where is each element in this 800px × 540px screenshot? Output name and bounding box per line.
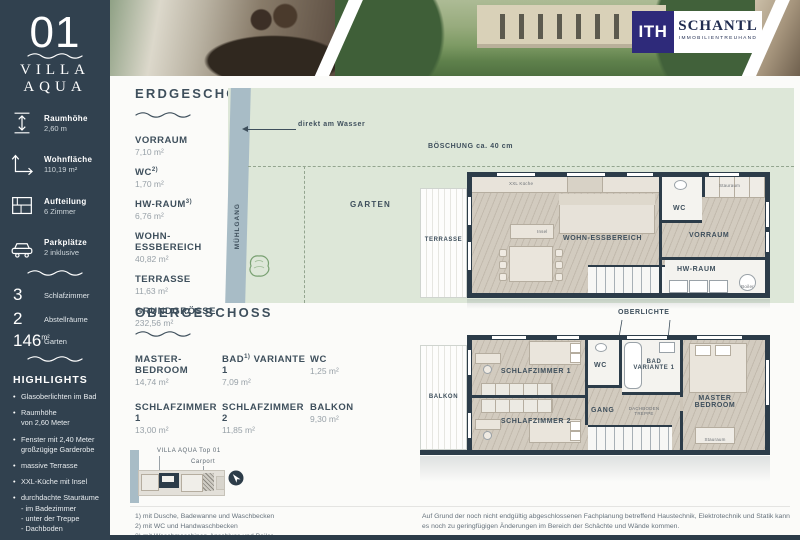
kueche-label: XXL Küche bbox=[509, 181, 533, 186]
kitchen-counter bbox=[472, 177, 659, 193]
unit-interior bbox=[162, 476, 174, 482]
stairs bbox=[588, 265, 668, 293]
appliance bbox=[709, 280, 728, 293]
plan-reflection bbox=[467, 299, 770, 309]
annotation-line bbox=[244, 129, 296, 130]
window bbox=[492, 336, 526, 339]
hw-raum-label: HW-RAUM bbox=[677, 266, 716, 273]
balcony-door bbox=[468, 413, 471, 438]
spec-value: 110,19 m² bbox=[44, 165, 92, 174]
project-title-line1: VILLA bbox=[0, 62, 110, 79]
highlighted-unit-top01 bbox=[159, 473, 179, 488]
oberlichte-label: OBERLICHTE bbox=[618, 309, 670, 316]
room-area: 40,82 m² bbox=[135, 254, 227, 264]
balcony-door bbox=[468, 350, 471, 375]
wave-divider bbox=[135, 329, 191, 337]
terrace-door bbox=[468, 242, 471, 270]
sidebar: 01 VILLA AQUA Raumhöhe 2,60 m Wohnfläche… bbox=[0, 0, 110, 540]
disclaimer-text: Auf Grund der noch nicht endgültig abges… bbox=[422, 512, 790, 532]
wave-divider bbox=[27, 268, 83, 276]
count-value: 146m² bbox=[13, 331, 44, 351]
insel-label: Insel bbox=[537, 229, 548, 234]
miniplan-title: VILLA AQUA Top 01 bbox=[157, 448, 221, 454]
room-name: WC2) bbox=[135, 167, 227, 178]
count-value: 3 bbox=[13, 285, 44, 305]
terrasse-area: TERRASSE bbox=[420, 188, 467, 298]
room-name: HW-RAUM3) bbox=[135, 199, 227, 210]
dachboden-treppe-label: DACHBODEN TREPPE bbox=[622, 406, 666, 416]
room-area: 9,30 m² bbox=[310, 414, 390, 424]
room-area: 11,63 m² bbox=[135, 286, 227, 296]
obergeschoss-heading: OBERGESCHOSS bbox=[135, 305, 395, 320]
car-icon bbox=[8, 233, 36, 261]
direkt-am-wasser-label: direkt am Wasser bbox=[298, 121, 365, 128]
window bbox=[627, 173, 653, 176]
brochure-page: 01 VILLA AQUA Raumhöhe 2,60 m Wohnfläche… bbox=[0, 0, 800, 540]
spec-living-area: Wohnfläche 110,19 m² bbox=[8, 150, 108, 178]
window bbox=[709, 173, 739, 176]
room-name: MASTER-BEDROOM bbox=[135, 354, 222, 376]
wohn-essbereich-label: WOHN-ESSBEREICH bbox=[563, 235, 642, 242]
room-entry: SCHLAFZIMMER 2 11,85 m² bbox=[222, 402, 310, 435]
chair bbox=[555, 261, 563, 269]
bottom-bar bbox=[110, 535, 800, 540]
boiler-label: Boiler bbox=[741, 284, 754, 289]
wc-label: WC bbox=[673, 205, 686, 212]
window bbox=[497, 173, 535, 176]
spec-value: 2 inklusive bbox=[44, 248, 87, 257]
count-label: Schlafzimmer bbox=[44, 291, 89, 300]
spec-parking: Parkplätze 2 inklusive bbox=[8, 233, 108, 261]
plan-reflection bbox=[420, 456, 770, 482]
miniplan-carport-label: Carport bbox=[191, 459, 215, 465]
chair bbox=[499, 261, 507, 269]
kitchen-appliance bbox=[567, 177, 603, 192]
count-storage: 2 Abstellräume bbox=[13, 309, 105, 329]
ith-logo-mark: ITH bbox=[632, 11, 674, 53]
room-name: BAD1) VARIANTE 1 bbox=[222, 354, 310, 376]
wall bbox=[702, 177, 705, 197]
project-title-line2: AQUA bbox=[0, 79, 110, 96]
schantl-logo: SCHANTL IMMOBILIENTREUHAND bbox=[674, 11, 762, 53]
unit bbox=[216, 476, 225, 490]
highlight-item: Fenster mit 2,40 Meter großzügige Garder… bbox=[13, 435, 105, 455]
wall bbox=[588, 385, 619, 388]
toilet bbox=[595, 343, 607, 352]
room-area: 13,00 m² bbox=[135, 425, 222, 435]
arrow-head bbox=[239, 126, 248, 132]
layout-icon bbox=[8, 192, 36, 220]
room-name: VORRAUM bbox=[135, 135, 227, 146]
pillow bbox=[570, 353, 581, 363]
chair bbox=[555, 249, 563, 257]
room-entry: BAD1) VARIANTE 1 7,09 m² bbox=[222, 354, 310, 387]
footer-divider bbox=[130, 506, 790, 507]
gang-label: GANG bbox=[591, 407, 614, 414]
terrasse-label: TERRASSE bbox=[421, 237, 466, 243]
balcony-wall bbox=[420, 450, 467, 455]
count-bedrooms: 3 Schlafzimmer bbox=[13, 285, 105, 305]
window bbox=[766, 202, 769, 227]
chair bbox=[483, 365, 492, 374]
wardrobe bbox=[481, 399, 553, 413]
highlight-item: Raumhöhe von 2,60 Meter bbox=[13, 408, 105, 428]
window bbox=[557, 336, 579, 339]
count-label: Abstellräume bbox=[44, 315, 88, 324]
window bbox=[567, 173, 605, 176]
room-area: 6,76 m² bbox=[135, 211, 227, 221]
highlights-list: Glasoberlichten im Bad Raumhöhe von 2,60… bbox=[13, 392, 105, 540]
room-name: WC bbox=[310, 354, 390, 365]
wave-divider bbox=[27, 354, 83, 362]
tree-icon bbox=[246, 253, 272, 279]
highlights-title: HIGHLIGHTS bbox=[13, 374, 88, 386]
schlafzimmer2-label: SCHLAFZIMMER 2 bbox=[492, 418, 580, 425]
logo-name: SCHANTL bbox=[674, 19, 762, 34]
wc-og-label: WC bbox=[594, 362, 607, 369]
window bbox=[697, 336, 742, 339]
count-garden: 146m² Garten bbox=[13, 331, 105, 351]
room-name: BALKON bbox=[310, 402, 390, 413]
vorraum-label: VORRAUM bbox=[689, 232, 729, 239]
room-area: 11,85 m² bbox=[222, 425, 310, 435]
spec-label: Aufteilung bbox=[44, 197, 87, 206]
spec-layout: Aufteilung 6 Zimmer bbox=[8, 192, 108, 220]
stairs bbox=[588, 425, 672, 450]
property-dashed-line bbox=[304, 166, 305, 303]
room-entry: WOHN-ESSBEREICH 40,82 m² bbox=[135, 231, 227, 264]
spec-room-height: Raumhöhe 2,60 m bbox=[8, 109, 108, 137]
toilet bbox=[674, 180, 687, 190]
garten-label: GARTEN bbox=[350, 200, 391, 209]
chair bbox=[555, 273, 563, 281]
wave-divider bbox=[135, 110, 191, 118]
chair bbox=[499, 273, 507, 281]
highlight-item: XXL-Küche mit Insel bbox=[13, 477, 105, 487]
door-opening bbox=[680, 397, 683, 411]
spec-value: 6 Zimmer bbox=[44, 207, 87, 216]
room-area: 14,74 m² bbox=[135, 377, 222, 387]
ground-floor-plan: XXL Küche Insel WOHN-ESSBEREICH WC Staur… bbox=[467, 172, 770, 298]
room-name: TERRASSE bbox=[135, 274, 227, 285]
living-area-icon bbox=[8, 150, 36, 178]
room-entry: VORRAUM 7,10 m² bbox=[135, 135, 227, 157]
stauraum-label: Stauraum bbox=[719, 183, 740, 188]
project-title: VILLA AQUA bbox=[0, 62, 110, 96]
highlight-item: massive Terrasse bbox=[13, 461, 105, 471]
room-entry: SCHLAFZIMMER 1 13,00 m² bbox=[135, 402, 222, 435]
wave-divider bbox=[27, 51, 83, 59]
logo-tagline: IMMOBILIENTREUHAND bbox=[674, 36, 762, 41]
boeschung-label: BÖSCHUNG ca. 40 cm bbox=[428, 143, 513, 150]
skylight-window bbox=[627, 336, 667, 339]
room-entry: HW-RAUM3) 6,76 m² bbox=[135, 199, 227, 221]
desk bbox=[475, 353, 501, 364]
room-entry: BALKON 9,30 m² bbox=[310, 402, 390, 435]
window bbox=[766, 360, 769, 405]
room-name: WOHN-ESSBEREICH bbox=[135, 231, 227, 253]
entrance-door bbox=[766, 232, 769, 252]
room-area: 7,09 m² bbox=[222, 377, 310, 387]
wall bbox=[662, 220, 702, 223]
room-entry: TERRASSE 11,63 m² bbox=[135, 274, 227, 296]
unit bbox=[181, 474, 203, 492]
spec-label: Raumhöhe bbox=[44, 114, 88, 123]
master-bedroom-label: MASTER BEDROOM bbox=[685, 395, 745, 409]
room-area: 1,70 m² bbox=[135, 179, 227, 189]
carport-area bbox=[203, 473, 214, 491]
erdgeschoss-heading: ERDGESCHOSS bbox=[135, 86, 227, 101]
mini-site-plan: VILLA AQUA Top 01 Carport bbox=[128, 446, 248, 506]
bad-variante-label: BAD VARIANTE 1 bbox=[629, 359, 679, 371]
dryer bbox=[689, 280, 708, 293]
pillow bbox=[570, 431, 581, 441]
chair bbox=[483, 431, 492, 440]
sink bbox=[659, 342, 675, 353]
pillow bbox=[570, 343, 581, 353]
wall bbox=[622, 392, 683, 395]
wall bbox=[680, 340, 683, 450]
unit bbox=[141, 474, 159, 491]
pillow bbox=[715, 345, 731, 356]
dining-table bbox=[509, 246, 553, 282]
schlafzimmer1-label: SCHLAFZIMMER 1 bbox=[492, 368, 580, 375]
balkon-label: BALKON bbox=[421, 394, 466, 400]
chair bbox=[499, 249, 507, 257]
spec-label: Parkplätze bbox=[44, 238, 87, 247]
upper-floor-plan: SCHLAFZIMMER 1 SCHLAFZIMMER 2 WC BAD VAR… bbox=[467, 335, 770, 455]
highlight-item: durchdachte Stauräume - im Badezimmer - … bbox=[13, 493, 105, 534]
room-name: SCHLAFZIMMER 1 bbox=[135, 402, 222, 424]
washing-machine bbox=[669, 280, 688, 293]
footnote-2: 2) mit WC und Handwaschbecken bbox=[135, 522, 274, 532]
room-area: 1,25 m² bbox=[310, 366, 390, 376]
spec-value: 2,60 m bbox=[44, 124, 88, 133]
room-entry: WC 1,25 m² bbox=[310, 354, 390, 387]
room-entry: MASTER-BEDROOM 14,74 m² bbox=[135, 354, 222, 387]
compass-icon bbox=[228, 470, 244, 486]
spec-label: Wohnfläche bbox=[44, 155, 92, 164]
stauraum-og-label: Stauraum bbox=[704, 437, 725, 442]
building-row bbox=[138, 470, 225, 496]
footnote-1: 1) mit Dusche, Badewanne und Waschbecken bbox=[135, 512, 274, 522]
room-area: 7,10 m² bbox=[135, 147, 227, 157]
room-entry: WC2) 1,70 m² bbox=[135, 167, 227, 189]
terrace-door bbox=[468, 197, 471, 225]
wall bbox=[472, 395, 585, 398]
boeschung-dashed-line bbox=[248, 166, 794, 167]
highlight-item: Glasoberlichten im Bad bbox=[13, 392, 105, 402]
boiler: Boiler bbox=[739, 274, 756, 291]
family-photo bbox=[110, 0, 350, 76]
sofa-back bbox=[559, 194, 655, 205]
count-label: Garten bbox=[44, 337, 67, 346]
muehlgang-label: MÜHLGANG bbox=[234, 203, 241, 249]
closet: Stauraum bbox=[695, 427, 735, 444]
erdgeschoss-section: ERDGESCHOSS VORRAUM 7,10 m² WC2) 1,70 m²… bbox=[135, 86, 227, 338]
room-name: SCHLAFZIMMER 2 bbox=[222, 402, 310, 424]
count-value: 2 bbox=[13, 309, 44, 329]
pillow bbox=[695, 345, 711, 356]
room-height-icon bbox=[8, 109, 36, 137]
obergeschoss-section: OBERGESCHOSS MASTER-BEDROOM 14,74 m² BAD… bbox=[135, 305, 395, 445]
balkon-area: BALKON bbox=[420, 345, 467, 450]
